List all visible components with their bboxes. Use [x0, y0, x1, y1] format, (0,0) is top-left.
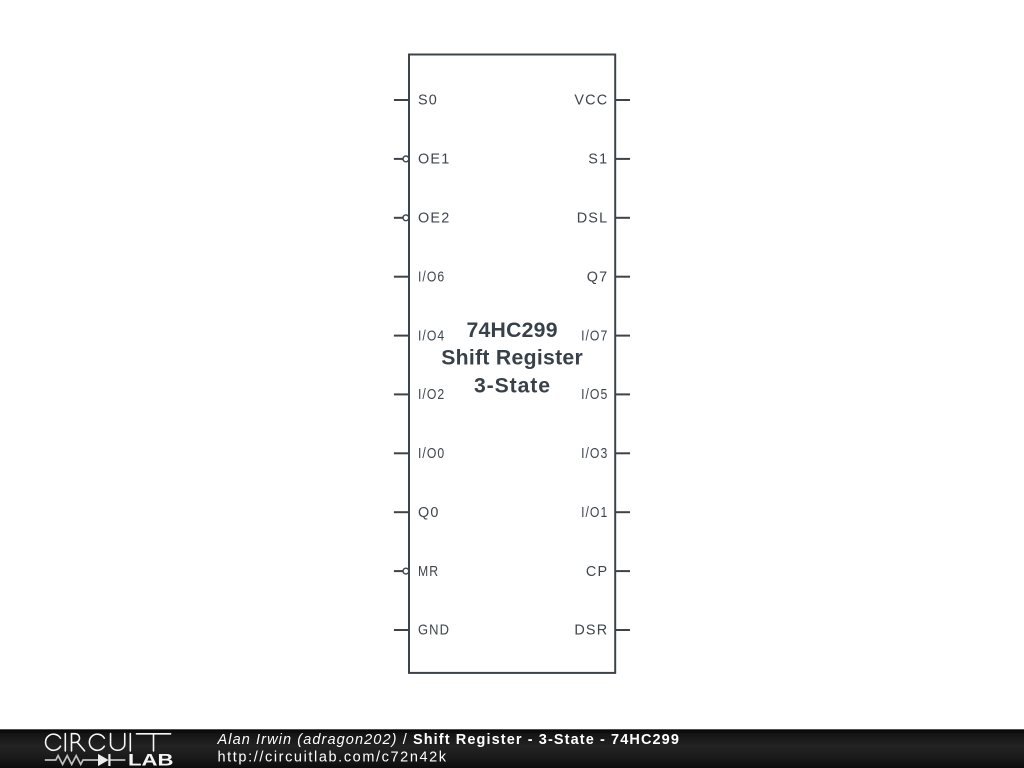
- svg-text:I/O1: I/O1: [581, 504, 608, 520]
- svg-text:I/O6: I/O6: [418, 268, 445, 284]
- svg-text:3-State: 3-State: [474, 375, 550, 398]
- svg-text:OE2: OE2: [418, 211, 450, 227]
- svg-text:MR: MR: [418, 563, 439, 579]
- svg-text:Q0: Q0: [418, 505, 440, 521]
- svg-text:OE1: OE1: [418, 152, 450, 168]
- svg-text:Q7: Q7: [587, 269, 609, 285]
- svg-text:I/O2: I/O2: [418, 386, 445, 402]
- svg-text:DSR: DSR: [574, 623, 608, 639]
- svg-text:I/O5: I/O5: [581, 386, 608, 402]
- svg-text:I/O3: I/O3: [581, 445, 608, 461]
- svg-text:http://circuitlab.com/c72n42k: http://circuitlab.com/c72n42k: [218, 749, 448, 765]
- svg-text:S1: S1: [588, 152, 608, 168]
- svg-text:I/O7: I/O7: [581, 327, 608, 343]
- svg-text:LAB: LAB: [128, 752, 174, 768]
- svg-text:DSL: DSL: [577, 211, 609, 227]
- svg-text:VCC: VCC: [574, 93, 608, 109]
- svg-text:CP: CP: [586, 564, 608, 580]
- svg-text:Shift Register: Shift Register: [441, 347, 583, 370]
- svg-text:GND: GND: [418, 622, 450, 638]
- svg-text:I/O0: I/O0: [418, 445, 445, 461]
- svg-text:Alan Irwin (adragon202) / Shif: Alan Irwin (adragon202) / Shift Register…: [217, 732, 681, 748]
- svg-text:S0: S0: [418, 93, 438, 109]
- svg-text:I/O4: I/O4: [418, 327, 445, 343]
- svg-text:74HC299: 74HC299: [467, 319, 558, 342]
